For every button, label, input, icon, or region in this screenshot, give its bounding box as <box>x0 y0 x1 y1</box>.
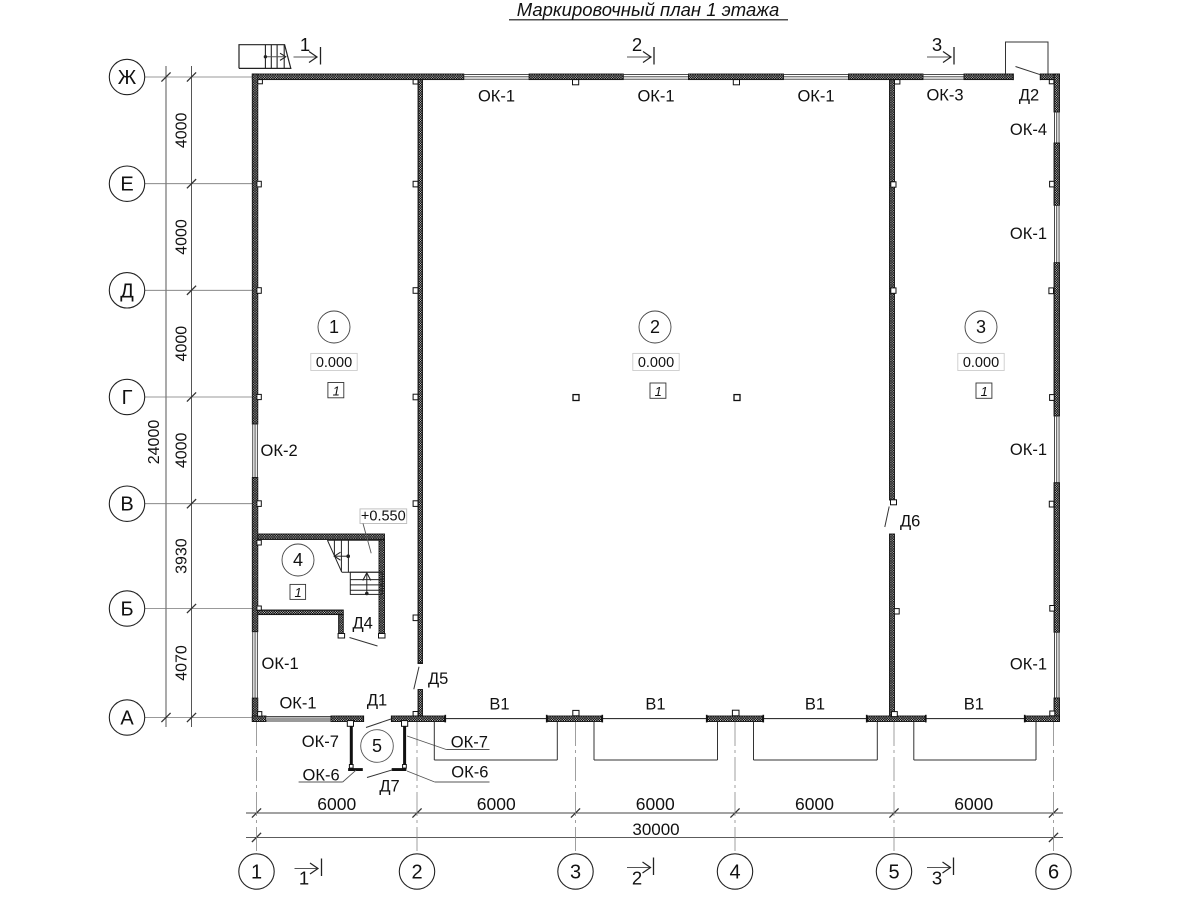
svg-text:ОК-1: ОК-1 <box>637 88 674 106</box>
svg-text:4000: 4000 <box>174 219 191 255</box>
svg-text:ОК-1: ОК-1 <box>262 655 299 673</box>
svg-text:ОК-1: ОК-1 <box>1010 441 1047 459</box>
svg-text:В1: В1 <box>645 696 665 714</box>
svg-text:3: 3 <box>932 34 942 55</box>
svg-text:1: 1 <box>294 585 301 600</box>
svg-text:30000: 30000 <box>632 820 679 839</box>
svg-text:4000: 4000 <box>174 326 191 362</box>
svg-text:0.000: 0.000 <box>963 355 999 371</box>
svg-text:Д2: Д2 <box>1019 86 1039 104</box>
svg-text:ОК-2: ОК-2 <box>261 442 298 460</box>
svg-text:Д6: Д6 <box>900 513 920 531</box>
svg-text:1: 1 <box>329 317 339 337</box>
svg-text:1: 1 <box>333 383 340 398</box>
svg-text:0.000: 0.000 <box>316 355 352 371</box>
svg-text:1: 1 <box>655 384 662 399</box>
svg-text:4000: 4000 <box>174 112 191 148</box>
svg-text:4000: 4000 <box>174 432 191 468</box>
svg-text:Е: Е <box>120 174 133 196</box>
svg-text:В1: В1 <box>964 696 984 714</box>
svg-text:Д: Д <box>120 280 134 302</box>
svg-text:Д7: Д7 <box>379 778 399 796</box>
svg-text:1: 1 <box>300 34 310 55</box>
svg-text:ОК-7: ОК-7 <box>451 734 488 752</box>
svg-text:6000: 6000 <box>954 794 993 814</box>
svg-text:6000: 6000 <box>477 794 516 814</box>
svg-text:2: 2 <box>411 862 422 884</box>
svg-text:3: 3 <box>976 317 986 337</box>
svg-text:ОК-1: ОК-1 <box>1010 225 1047 243</box>
svg-text:4: 4 <box>293 550 303 570</box>
svg-text:3930: 3930 <box>174 538 191 574</box>
svg-text:ОК-1: ОК-1 <box>797 88 834 106</box>
svg-text:ОК-7: ОК-7 <box>302 733 339 751</box>
svg-text:А: А <box>120 708 134 730</box>
svg-text:6000: 6000 <box>795 794 834 814</box>
svg-text:0.000: 0.000 <box>638 355 674 371</box>
svg-text:Д4: Д4 <box>353 615 373 633</box>
svg-text:5: 5 <box>888 862 899 884</box>
svg-text:В: В <box>120 494 133 516</box>
svg-text:6000: 6000 <box>636 794 675 814</box>
svg-text:24000: 24000 <box>146 420 163 465</box>
svg-text:Б: Б <box>120 599 133 621</box>
svg-text:1: 1 <box>251 862 262 884</box>
svg-text:ОК-4: ОК-4 <box>1010 121 1047 139</box>
svg-text:ОК-1: ОК-1 <box>478 88 515 106</box>
svg-text:1: 1 <box>981 384 988 399</box>
svg-text:4: 4 <box>729 862 740 884</box>
svg-text:Д5: Д5 <box>428 670 448 688</box>
svg-text:ОК-3: ОК-3 <box>926 87 963 105</box>
svg-text:ОК-6: ОК-6 <box>451 764 488 782</box>
svg-text:ОК-1: ОК-1 <box>279 695 316 713</box>
svg-text:2: 2 <box>632 34 642 55</box>
svg-text:5: 5 <box>372 736 382 756</box>
svg-text:+0.550: +0.550 <box>361 509 406 525</box>
svg-text:Ж: Ж <box>118 67 137 89</box>
svg-text:6: 6 <box>1048 862 1059 884</box>
svg-text:2: 2 <box>650 317 660 337</box>
svg-text:1: 1 <box>299 868 309 889</box>
svg-text:Д1: Д1 <box>367 692 387 710</box>
svg-text:6000: 6000 <box>317 794 356 814</box>
svg-text:В1: В1 <box>805 696 825 714</box>
svg-text:В1: В1 <box>489 696 509 714</box>
svg-text:2: 2 <box>632 868 642 889</box>
svg-text:3: 3 <box>932 868 942 889</box>
svg-text:Маркировочный план 1 этажа: Маркировочный план 1 этажа <box>517 0 780 20</box>
svg-text:4070: 4070 <box>174 645 191 681</box>
svg-text:Г: Г <box>122 387 133 409</box>
svg-text:3: 3 <box>570 862 581 884</box>
svg-text:ОК-1: ОК-1 <box>1010 656 1047 674</box>
